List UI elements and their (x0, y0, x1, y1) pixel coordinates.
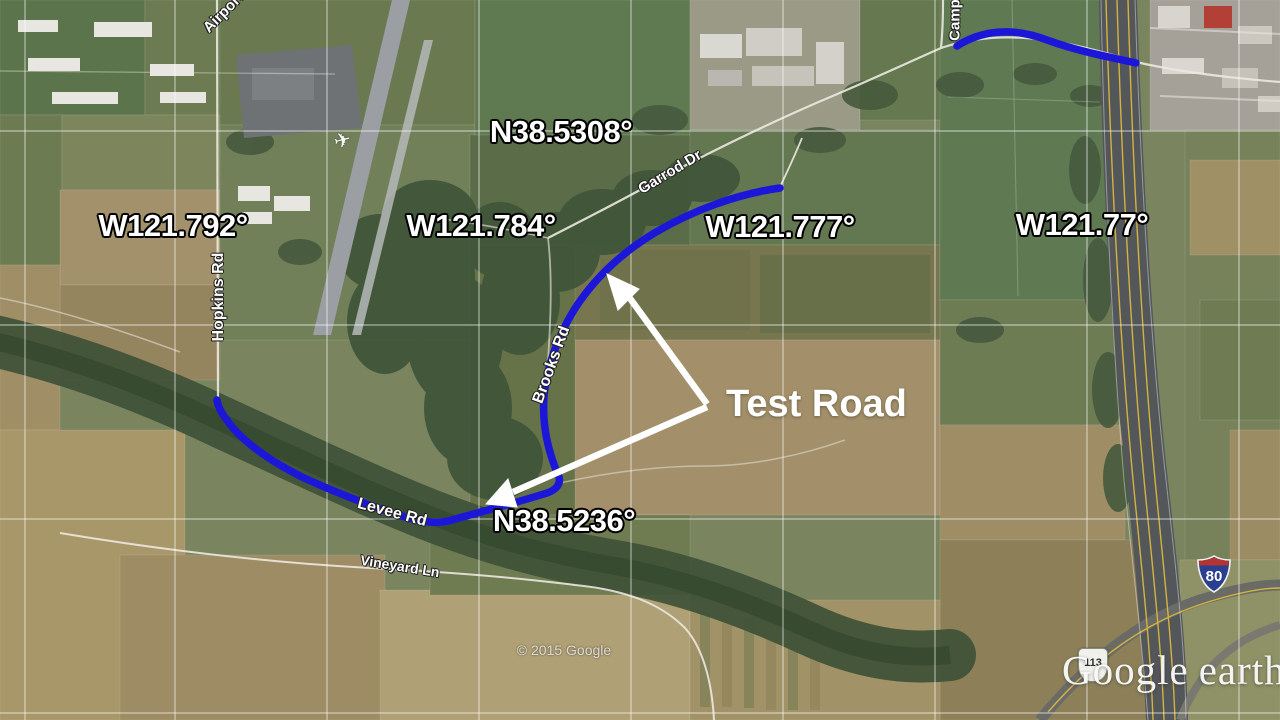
graticule-label-w121-777: W121.777° (705, 209, 854, 245)
graticule-label-w121-784: W121.784° (406, 208, 555, 244)
terrain-fields (0, 0, 1280, 720)
graticule-label-n38-5308: N38.5308° (490, 114, 632, 150)
test-road-annotation-label: Test Road (726, 383, 907, 426)
graticule-label-w121-77: W121.77° (1016, 207, 1148, 243)
interstate-80-number: 80 (1196, 568, 1232, 585)
copyright-attribution: © 2015 Google (517, 642, 611, 658)
google-earth-watermark: Googleearth (1062, 646, 1280, 694)
road-label-hopkins-rd: Hopkins Rd (210, 253, 228, 342)
interstate-80-shield: 80 (1196, 554, 1232, 594)
satellite-imagery (0, 0, 1280, 720)
google-earth-map-canvas[interactable]: N38.5308° W121.792° W121.784° W121.777° … (0, 0, 1280, 720)
road-label-camp: Camp (947, 0, 964, 41)
graticule-label-w121-792: W121.792° (98, 208, 247, 244)
watermark-google: Google (1062, 647, 1189, 693)
graticule-label-n38-5236: N38.5236° (493, 503, 635, 539)
watermark-earth: earth (1199, 647, 1280, 693)
